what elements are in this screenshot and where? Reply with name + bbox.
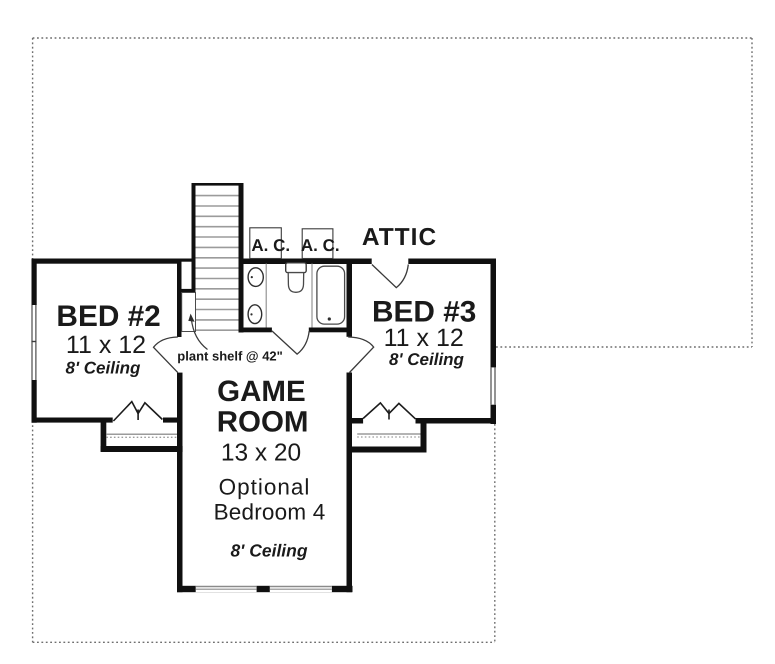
svg-text:ROOM: ROOM [217, 406, 309, 439]
svg-text:8' Ceiling: 8' Ceiling [66, 359, 142, 378]
svg-text:11 x 12: 11 x 12 [66, 331, 146, 359]
svg-text:plant shelf @ 42": plant shelf @ 42" [177, 348, 283, 363]
svg-text:Optional: Optional [219, 474, 311, 499]
svg-text:BED #2: BED #2 [56, 300, 160, 333]
svg-text:ATTIC: ATTIC [362, 224, 437, 251]
svg-text:8' Ceiling: 8' Ceiling [230, 541, 307, 561]
svg-text:8' Ceiling: 8' Ceiling [389, 350, 465, 369]
svg-text:11 x 12: 11 x 12 [384, 324, 464, 352]
svg-text:GAME: GAME [217, 375, 306, 408]
svg-text:13 x 20: 13 x 20 [221, 440, 301, 467]
svg-text:A. C.: A. C. [301, 236, 340, 255]
svg-text:Bedroom 4: Bedroom 4 [214, 500, 326, 525]
svg-text:A. C.: A. C. [251, 236, 290, 255]
